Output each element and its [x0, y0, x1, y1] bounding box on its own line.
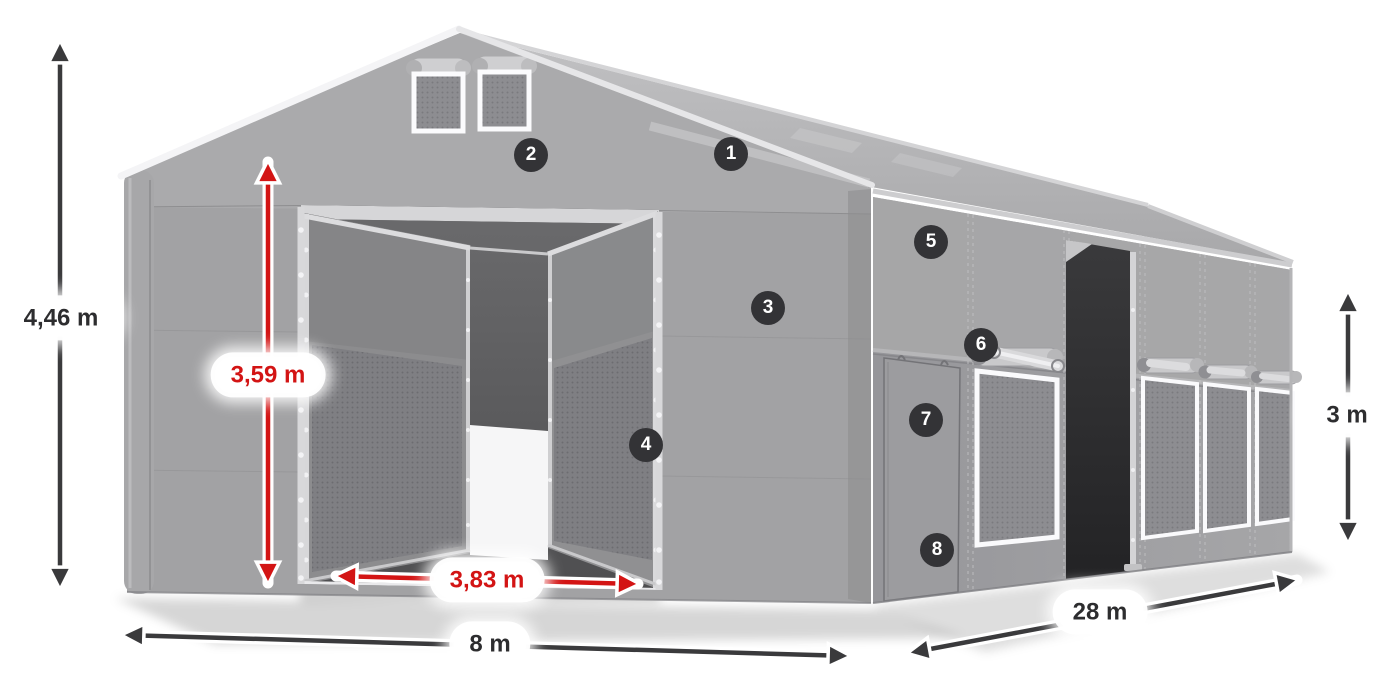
door-panel-left — [304, 213, 471, 584]
feature-marker-8[interactable]: 8 — [920, 533, 954, 567]
feature-marker-7[interactable]: 7 — [909, 403, 943, 437]
dimension-total-height: 4,46 m — [8, 299, 115, 336]
feature-marker-2[interactable]: 2 — [514, 138, 548, 172]
gable-vent-right — [472, 56, 537, 129]
side-door-panel — [884, 356, 960, 601]
feature-marker-3[interactable]: 3 — [751, 291, 785, 325]
dimension-entrance-width: 3,83 m — [434, 561, 541, 598]
feature-marker-5[interactable]: 5 — [914, 225, 948, 259]
dimension-tent-width: 8 m — [453, 625, 526, 662]
feature-marker-4[interactable]: 4 — [629, 428, 663, 462]
feature-marker-6[interactable]: 6 — [964, 328, 998, 362]
side-opening — [1066, 240, 1142, 579]
door-see-through — [470, 425, 548, 560]
door-panel-right — [548, 211, 659, 589]
tent-dimension-diagram: 4,46 m 3,59 m 3,83 m 8 m 28 m 3 m 1 2 3 … — [0, 0, 1400, 700]
front-corner-pillar — [124, 170, 154, 594]
feature-marker-1[interactable]: 1 — [714, 137, 748, 171]
dimension-side-height: 3 m — [1310, 396, 1383, 433]
tent-illustration — [0, 0, 1400, 700]
dimension-entrance-height: 3,59 m — [215, 356, 322, 393]
gable-vent-left — [406, 58, 471, 131]
dimension-tent-length: 28 m — [1057, 593, 1144, 630]
